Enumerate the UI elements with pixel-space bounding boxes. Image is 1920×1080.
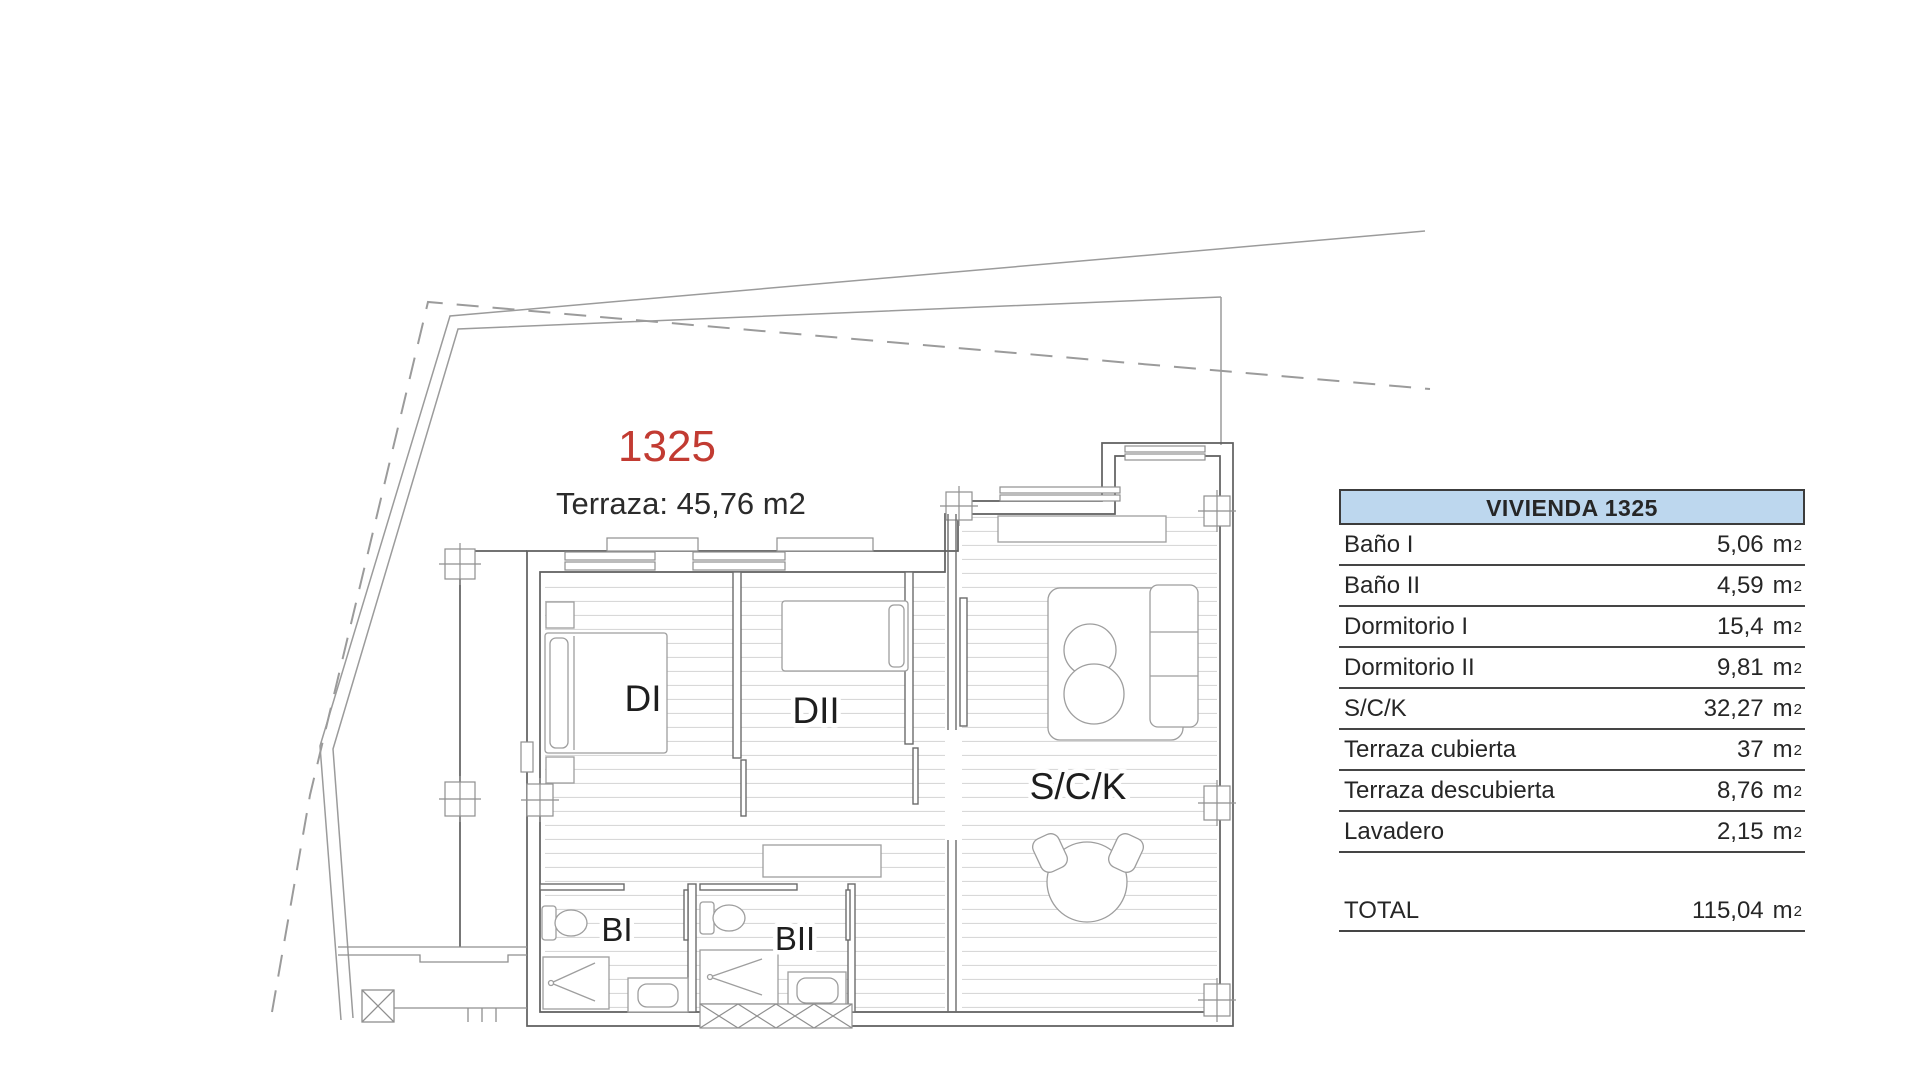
room-label-salon-cocina: S/C/K — [1030, 766, 1127, 807]
room-label-dormitorio1: DI — [625, 678, 662, 719]
room-area: 2,15m2 — [1717, 818, 1801, 846]
toilet-bowl — [555, 910, 587, 936]
hatched-strip — [700, 1004, 852, 1028]
door-leaf — [741, 760, 746, 816]
pillar-icon — [1198, 490, 1236, 532]
pillar-icon — [1198, 978, 1236, 1022]
area-table: VIVIENDA 1325 Baño I 5,06m2 Baño II 4,59… — [1339, 489, 1805, 932]
pillow — [889, 605, 904, 667]
pillar-icon — [439, 543, 481, 585]
room-name: Terraza cubierta — [1344, 736, 1516, 764]
pillow — [550, 638, 568, 748]
pillar-icon — [1198, 780, 1236, 826]
table-row: Baño II 4,59m2 — [1339, 566, 1805, 607]
room-area: 4,59m2 — [1717, 572, 1801, 600]
table-header: VIVIENDA 1325 — [1339, 489, 1805, 525]
room-name: Dormitorio I — [1344, 613, 1468, 641]
slider-pole — [846, 890, 850, 940]
slider-pole — [684, 890, 688, 940]
room-area: 15,4m2 — [1717, 613, 1801, 641]
toilet-bowl — [713, 905, 745, 931]
room-area: 37m2 — [1737, 736, 1801, 764]
page: { "plan": { "unit_number": "1325", "unit… — [0, 0, 1920, 1080]
table-row: Dormitorio I 15,4m2 — [1339, 607, 1805, 648]
floor-hatching — [545, 505, 1217, 1008]
kitchen-counter — [998, 516, 1166, 542]
total-label: TOTAL — [1344, 897, 1419, 925]
washbasin-bowl — [797, 978, 838, 1003]
terrace-area-note: Terraza: 45,76 m2 — [556, 486, 806, 521]
nightstand — [546, 757, 574, 783]
room-name: Dormitorio II — [1344, 654, 1475, 682]
sliding-door-panel — [960, 598, 967, 726]
wall-bi-bii — [688, 884, 696, 1012]
room-name: Baño I — [1344, 531, 1413, 559]
pillar-icon — [940, 486, 978, 526]
nightstand — [546, 602, 574, 628]
table-row: Lavadero 2,15m2 — [1339, 812, 1805, 853]
table-total-row: TOTAL 115,04m2 — [1339, 891, 1805, 932]
room-name: Terraza descubierta — [1344, 777, 1555, 805]
pillar-icon — [521, 778, 559, 822]
table-row: Terraza cubierta 37m2 — [1339, 730, 1805, 771]
pillar-icon — [439, 776, 481, 822]
table-row: S/C/K 32,27m2 — [1339, 689, 1805, 730]
table-spacer — [1339, 853, 1805, 891]
table-row: Baño I 5,06m2 — [1339, 525, 1805, 566]
washbasin-bowl — [638, 984, 678, 1007]
room-name: Baño II — [1344, 572, 1420, 600]
room-label-dormitorio2: DII — [792, 690, 839, 731]
room-label-bano1: BI — [601, 911, 632, 948]
cabinet — [763, 845, 881, 877]
room-area: 32,27m2 — [1704, 695, 1801, 723]
room-area: 9,81m2 — [1717, 654, 1801, 682]
wall-bath-top-2 — [700, 884, 797, 890]
toilet-tank — [542, 906, 556, 940]
sink-circle — [1064, 664, 1124, 724]
sofa — [1150, 585, 1198, 727]
table-row: Dormitorio II 9,81m2 — [1339, 648, 1805, 689]
room-area: 5,06m2 — [1717, 531, 1801, 559]
room-label-bano2: BII — [775, 920, 815, 957]
total-area: 115,04m2 — [1692, 897, 1801, 925]
door-leaf — [913, 748, 918, 804]
room-area: 8,76m2 — [1717, 777, 1801, 805]
unit-number-label: 1325 — [618, 422, 716, 471]
neighbor-structure — [338, 947, 527, 1022]
room-name: Lavadero — [1344, 818, 1444, 846]
wall-bath-top-1 — [540, 884, 624, 890]
toilet-tank — [700, 902, 714, 934]
room-name: S/C/K — [1344, 695, 1407, 723]
table-row: Terraza descubierta 8,76m2 — [1339, 771, 1805, 812]
wall-di-dii — [733, 572, 741, 758]
